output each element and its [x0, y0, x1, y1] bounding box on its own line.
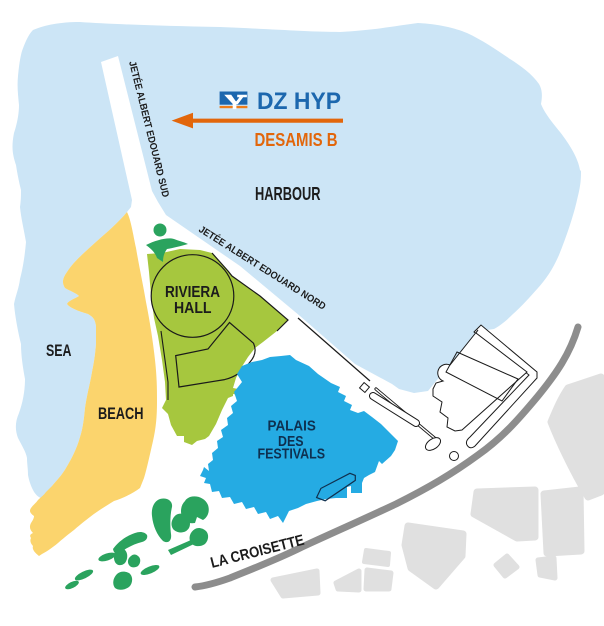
svg-text:FESTIVALS: FESTIVALS — [258, 446, 326, 462]
svg-text:PALAIS: PALAIS — [268, 419, 317, 435]
svg-text:BEACH: BEACH — [98, 405, 144, 423]
svg-text:DZ HYP: DZ HYP — [257, 88, 341, 115]
svg-text:RIVIERA: RIVIERA — [165, 284, 220, 301]
svg-text:HALL: HALL — [174, 300, 212, 317]
svg-text:HARBOUR: HARBOUR — [255, 183, 321, 204]
svg-text:SEA: SEA — [46, 342, 72, 360]
svg-text:DESAMIS B: DESAMIS B — [255, 130, 338, 150]
